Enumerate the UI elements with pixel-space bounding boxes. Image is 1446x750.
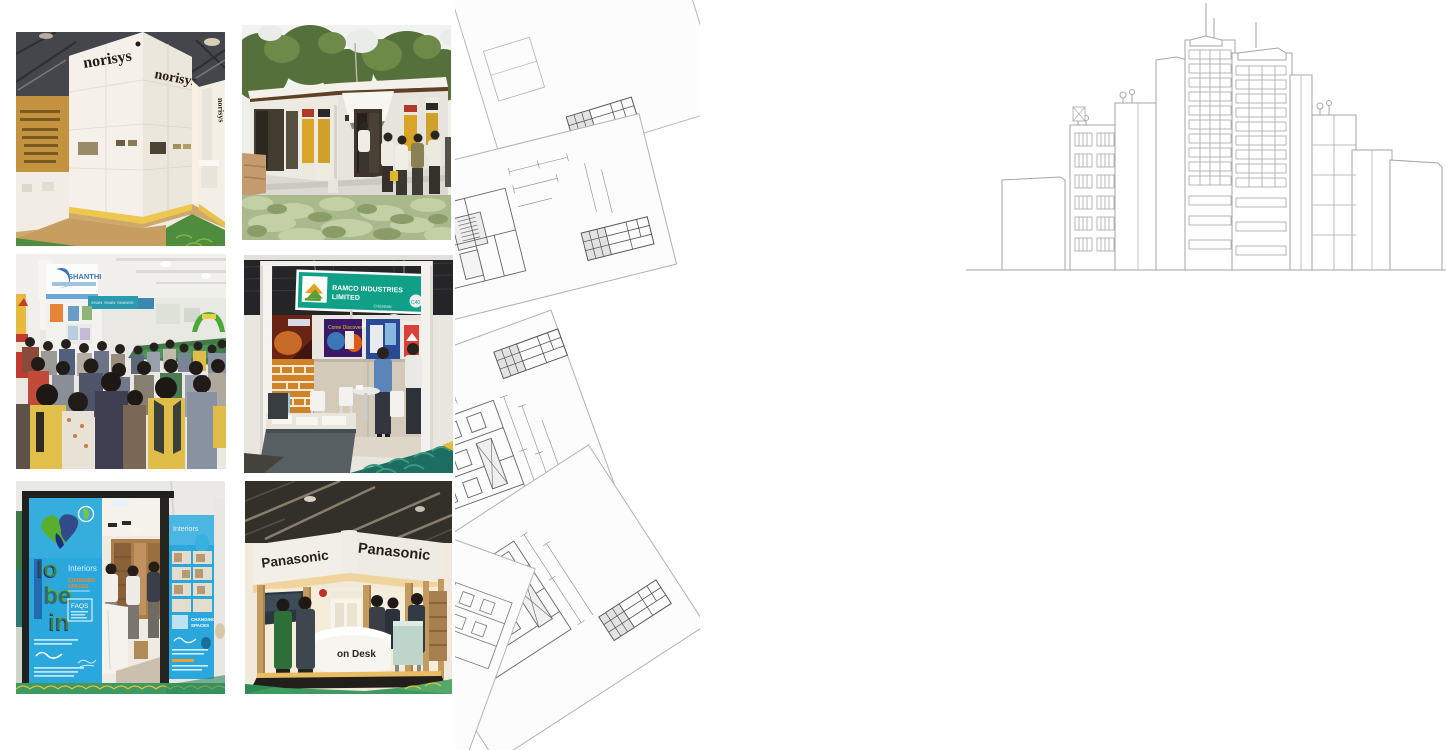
svg-text:SPACES: SPACES <box>68 584 89 590</box>
svg-text:CHENNAI: CHENNAI <box>373 303 391 309</box>
svg-text:FAQS: FAQS <box>71 603 89 610</box>
svg-text:SH: SH <box>128 300 134 305</box>
svg-text:CHANGING: CHANGING <box>191 617 216 622</box>
svg-text:SHAN: SHAN <box>117 300 128 305</box>
svg-text:on Desk: on Desk <box>337 649 376 660</box>
svg-text:C40: C40 <box>411 300 420 306</box>
svg-text:SPACES: SPACES <box>191 623 209 628</box>
svg-text:SHAN: SHAN <box>91 300 102 305</box>
svg-text:Come Discover: Come Discover <box>328 325 363 331</box>
svg-text:Interiors: Interiors <box>173 526 199 533</box>
svg-text:LIMITED: LIMITED <box>332 294 360 302</box>
svg-text:SHAN: SHAN <box>104 300 115 305</box>
svg-text:Interiors: Interiors <box>68 564 97 573</box>
svg-text:SHANTHI: SHANTHI <box>68 272 101 281</box>
svg-text:be: be <box>43 583 71 610</box>
svg-text:norisys: norisys <box>216 98 225 123</box>
svg-text:in: in <box>49 609 70 636</box>
